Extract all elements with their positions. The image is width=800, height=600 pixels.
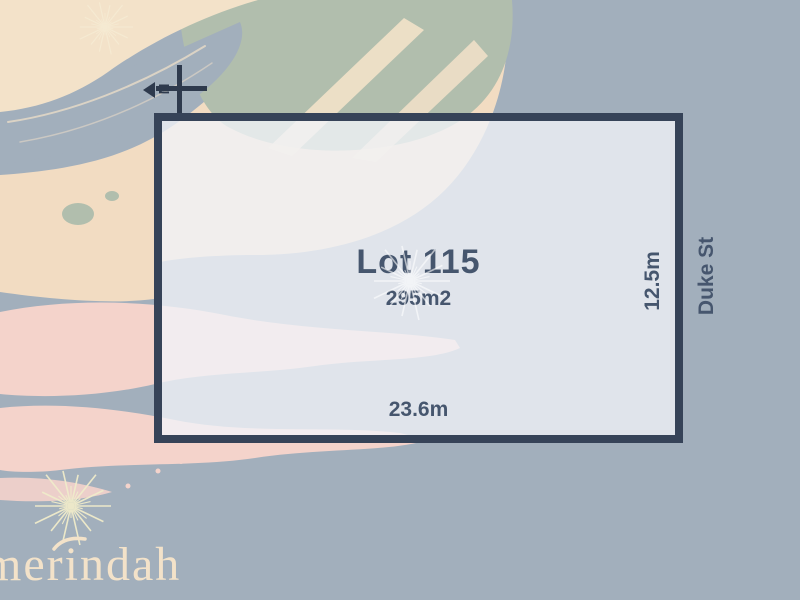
lot-depth-dimension: 12.5m — [641, 241, 667, 321]
sparkle-icon — [368, 239, 452, 323]
north-label: N — [155, 79, 173, 99]
sage-accent-shape — [105, 191, 119, 201]
north-arrowhead — [143, 82, 155, 98]
sparkle-icon — [76, 0, 135, 56]
pink-speckle — [126, 484, 131, 489]
leaf-flourish-icon — [52, 534, 88, 552]
pink-speckle — [164, 444, 172, 452]
sage-accent-shape — [62, 203, 94, 225]
pink-speckle — [156, 469, 161, 474]
street-name-label: Duke St — [695, 236, 721, 316]
pink-speckle — [178, 458, 184, 464]
lot-plan-canvas: N Lot 115 295m2 23.6m 12.5m Duke St meri… — [0, 0, 800, 600]
lot-frontage-dimension: 23.6m — [162, 398, 675, 422]
brand-watermark: merindah — [0, 541, 181, 589]
